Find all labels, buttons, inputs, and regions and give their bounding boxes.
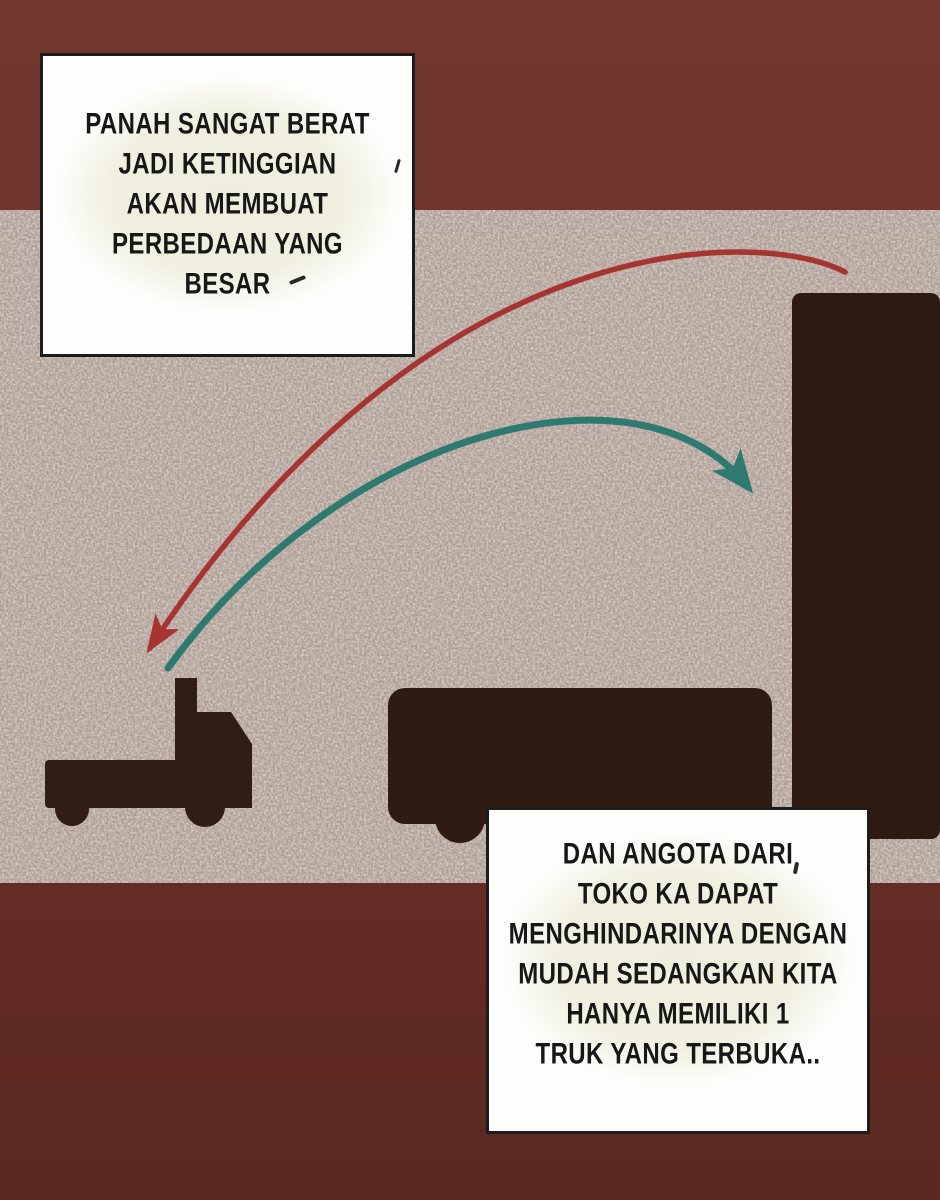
bubble-line: TRUK YANG TERBUKA.. xyxy=(509,1030,848,1080)
bubble-text: PANAH SANGAT BERAT JADI KETINGGIAN AKAN … xyxy=(85,105,370,305)
comic-page: PANAH SANGAT BERAT JADI KETINGGIAN AKAN … xyxy=(0,0,940,1200)
speech-bubble-top-left: PANAH SANGAT BERAT JADI KETINGGIAN AKAN … xyxy=(40,53,415,357)
large-truck-box-silhouette xyxy=(792,293,940,839)
pen-mark xyxy=(394,159,401,173)
speech-bubble-bottom-right: DAN ANGOTA DARI TOKO KA DAPAT MENGHINDAR… xyxy=(486,807,870,1134)
bubble-line: BESAR xyxy=(85,260,370,310)
